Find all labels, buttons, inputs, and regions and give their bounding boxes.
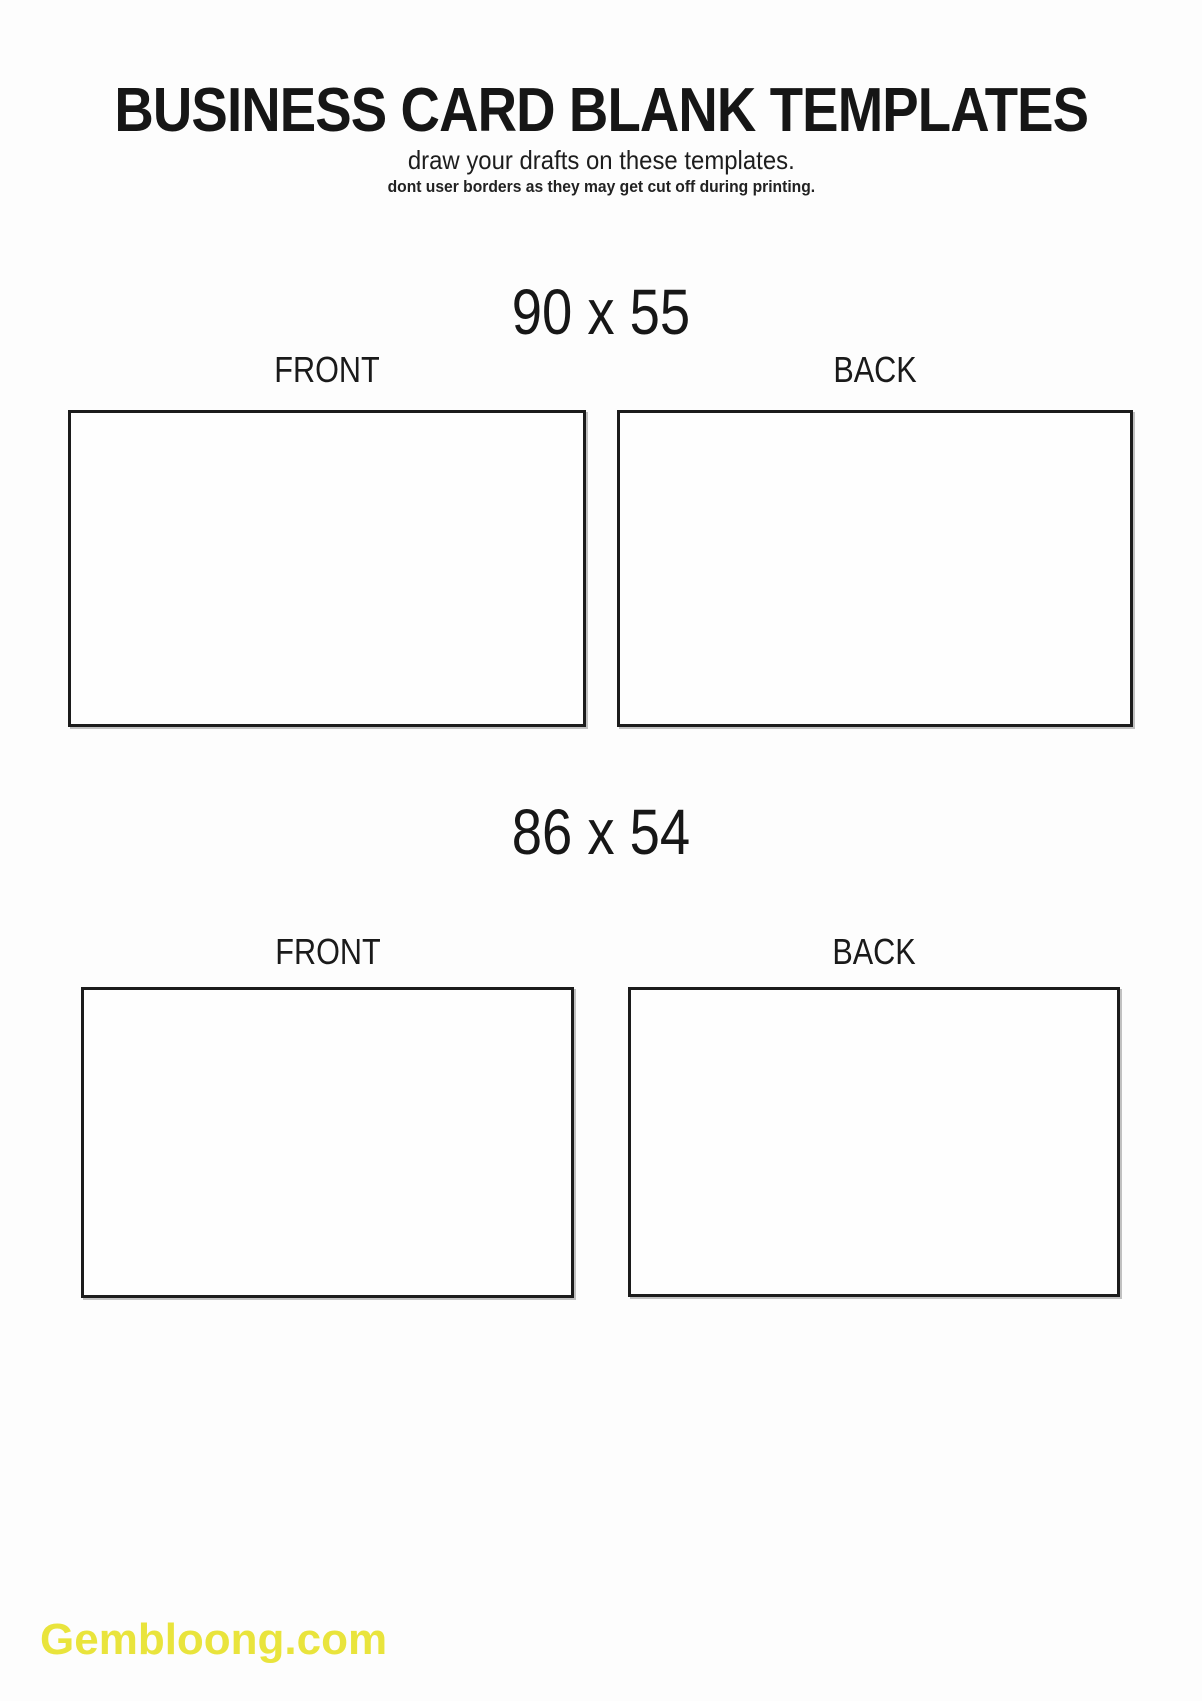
back-label-86x54-text: BACK (832, 934, 915, 970)
document-page: BUSINESS CARD BLANK TEMPLATES draw your … (0, 0, 1202, 1701)
size-heading-86x54-text: 86 x 54 (512, 800, 690, 864)
page-title: BUSINESS CARD BLANK TEMPLATES (0, 80, 1202, 142)
size-heading-86x54: 86 x 54 (0, 800, 1202, 864)
page-title-text: BUSINESS CARD BLANK TEMPLATES (114, 80, 1088, 142)
front-label-86x54: FRONT (81, 934, 574, 970)
back-label-90x55-text: BACK (833, 352, 916, 388)
back-label-86x54: BACK (628, 934, 1120, 970)
page-note: dont user borders as they may get cut of… (0, 177, 1202, 196)
card-back-90x55 (617, 410, 1133, 727)
page-note-text: dont user borders as they may get cut of… (387, 177, 815, 196)
size-heading-90x55-text: 90 x 55 (512, 280, 690, 344)
size-heading-90x55: 90 x 55 (0, 280, 1202, 344)
front-label-90x55-text: FRONT (274, 352, 379, 388)
watermark-text: Gembloong.com (40, 1615, 387, 1664)
card-back-86x54 (628, 987, 1120, 1297)
front-label-86x54-text: FRONT (275, 934, 380, 970)
back-label-90x55: BACK (617, 352, 1133, 388)
watermark: Gembloong.com (40, 1616, 387, 1664)
page-subtitle: draw your drafts on these templates. (0, 146, 1202, 174)
front-label-90x55: FRONT (68, 352, 586, 388)
page-subtitle-text: draw your drafts on these templates. (408, 146, 795, 174)
card-front-86x54 (81, 987, 574, 1298)
card-front-90x55 (68, 410, 586, 727)
